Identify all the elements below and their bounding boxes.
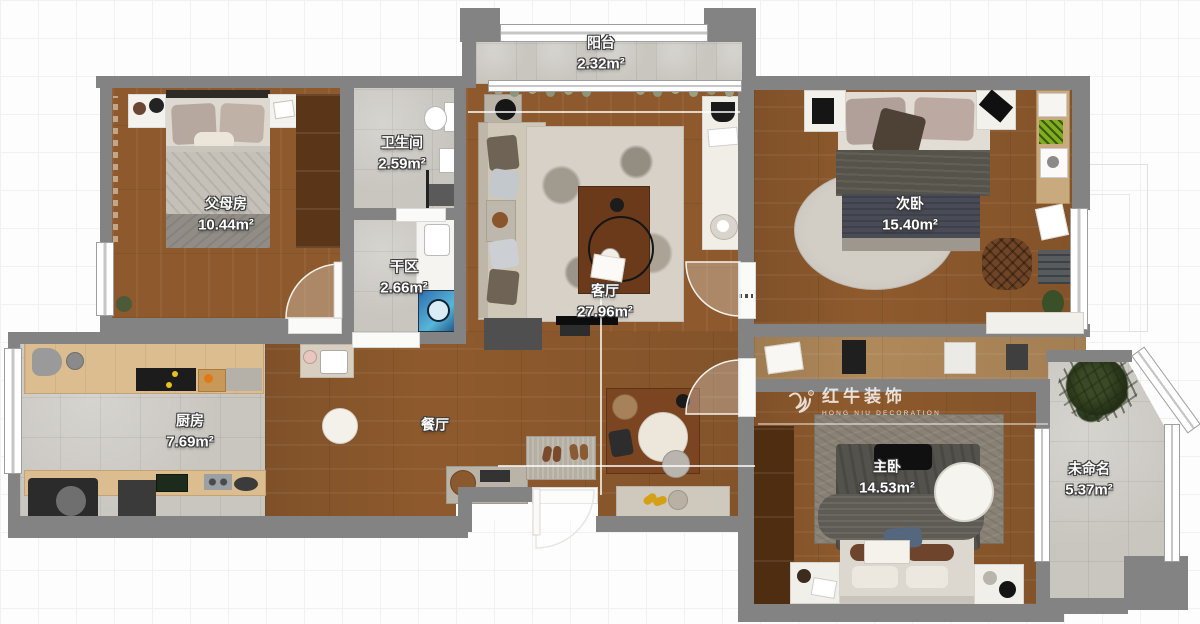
bed-foot <box>842 238 980 251</box>
dry-area-opening <box>352 332 420 348</box>
hall-sink <box>320 350 348 374</box>
decor-sketch <box>273 100 295 120</box>
room-label-dining: 餐厅 <box>421 415 449 436</box>
dining-stool <box>662 450 690 478</box>
bull-logo-icon: ® <box>786 388 816 418</box>
wall <box>8 470 20 520</box>
table-lamp <box>149 98 164 113</box>
headboard <box>840 596 974 604</box>
washing-machine-door <box>427 299 450 322</box>
wall <box>742 76 1090 90</box>
wall <box>1072 88 1090 210</box>
plant-pot <box>133 102 146 115</box>
bowl-inner <box>717 220 729 232</box>
paper <box>811 577 838 599</box>
sofa-cushion <box>486 269 519 306</box>
section-line <box>468 111 740 113</box>
food-item <box>204 374 213 383</box>
bed-tray-white <box>864 540 910 564</box>
table-plant <box>610 198 624 212</box>
room-label-living: 客厅27.96m² <box>577 280 633 324</box>
wall <box>738 88 754 262</box>
wall <box>1124 556 1188 610</box>
wall <box>738 414 754 622</box>
exterior-patch <box>456 502 598 520</box>
parents-door-frame <box>288 318 342 334</box>
window-bench <box>986 312 1084 334</box>
pillow <box>852 566 898 588</box>
dry-basin <box>424 224 450 256</box>
wall <box>462 40 476 88</box>
hall-mirror <box>303 350 317 364</box>
parents-wardrobe <box>296 94 340 248</box>
sofa-cushion <box>486 135 519 172</box>
room-label-unnamed: 未命名5.37m² <box>1065 458 1113 502</box>
wall <box>704 8 756 42</box>
brand-name: 红牛装饰 <box>822 388 941 407</box>
round-side-table <box>934 462 994 522</box>
strip-black-box <box>842 340 866 374</box>
wall <box>96 76 476 88</box>
cooktop <box>136 368 196 391</box>
wall <box>418 332 466 344</box>
wall <box>738 604 1064 622</box>
shower-mat <box>429 184 456 206</box>
curtain <box>113 96 118 242</box>
dining-chair-black <box>608 428 634 457</box>
master-door-frame <box>738 358 756 417</box>
unnamed-right-window <box>1164 424 1180 562</box>
storage-chest <box>1038 250 1070 284</box>
svg-text:®: ® <box>810 391 813 396</box>
slipper <box>552 446 561 463</box>
pot <box>797 569 811 583</box>
slipper <box>580 444 589 460</box>
wood-tray <box>492 212 508 228</box>
wall <box>1036 598 1128 614</box>
brand-subtitle: HONG NIU DECORATION <box>822 410 941 417</box>
master-wardrobe <box>754 426 794 606</box>
black-pot <box>999 581 1016 598</box>
room-label-balcony: 阳台2.32m² <box>577 32 625 76</box>
strip-papers <box>764 342 804 375</box>
cabinet-strip-floor <box>754 337 1086 379</box>
wok <box>234 477 258 491</box>
room-label-bathroom: 卫生间2.59m² <box>378 132 426 176</box>
plant-leaves <box>1058 352 1138 422</box>
teapot <box>676 394 690 408</box>
sofa-pillow <box>488 238 520 270</box>
wall <box>470 487 532 502</box>
disc <box>983 571 997 585</box>
wall <box>8 516 468 538</box>
kitchen-window <box>4 348 22 474</box>
wall <box>596 516 742 532</box>
wall <box>738 316 754 358</box>
tv-stand <box>560 325 590 336</box>
entry-round-stool <box>668 490 688 510</box>
exterior-platform-outline-inner <box>1086 194 1130 332</box>
section-line <box>498 465 755 467</box>
parents-window <box>96 242 114 316</box>
toilet-bowl <box>424 106 447 131</box>
room-label-parents: 父母房10.44m² <box>198 193 254 237</box>
printer <box>1038 93 1067 117</box>
balcony-living-window <box>488 80 742 92</box>
stove-plate <box>204 474 232 490</box>
plant <box>116 296 132 312</box>
burner-dot <box>166 382 172 388</box>
dining-chair <box>612 394 638 420</box>
black-tray <box>480 470 510 482</box>
wall <box>352 208 396 220</box>
room-label-kitchen: 厨房7.69m² <box>166 410 214 454</box>
floor-plan: 阳台2.32m² 父母房10.44m² 卫生间2.59m² 干区2.66m² 客… <box>0 0 1200 624</box>
pillow <box>906 566 948 588</box>
bathroom-door-frame <box>396 208 446 222</box>
kitchen-sink <box>156 474 188 492</box>
threshold-marks <box>739 294 753 298</box>
book <box>812 98 834 124</box>
notepad-dot <box>1047 156 1059 168</box>
papers <box>707 127 738 148</box>
second-door-frame <box>738 262 756 319</box>
wall <box>460 8 500 42</box>
wall <box>454 88 466 332</box>
fridge-handle <box>56 486 86 516</box>
section-line <box>758 423 1048 425</box>
kitchen-cabinet-dark <box>118 480 156 518</box>
wall <box>1046 350 1132 362</box>
desk-chair <box>32 348 62 376</box>
master-unnamed-window <box>1034 428 1050 562</box>
strip-marble-plate <box>944 342 976 374</box>
room-label-dry: 干区2.66m² <box>380 256 428 300</box>
sofa-pillow <box>488 168 520 200</box>
small-round-table <box>322 408 358 444</box>
pot <box>66 352 84 370</box>
laundry-basket <box>982 238 1032 290</box>
magazine <box>590 254 625 283</box>
brand-watermark: ® 红牛装饰 HONG NIU DECORATION <box>786 388 941 418</box>
room-label-master: 主卧14.53m² <box>859 456 915 500</box>
room-label-second: 次卧15.40m² <box>882 193 938 237</box>
bed-blanket-olive <box>836 150 990 196</box>
entry-door-frame <box>532 487 598 504</box>
tv-cabinet <box>484 318 542 350</box>
kettle <box>495 99 516 120</box>
burner-dot <box>172 371 178 377</box>
strip-box <box>1006 344 1028 370</box>
counter-end <box>226 368 262 391</box>
green-box <box>1039 120 1063 144</box>
wall <box>100 318 290 332</box>
wall <box>100 88 112 244</box>
